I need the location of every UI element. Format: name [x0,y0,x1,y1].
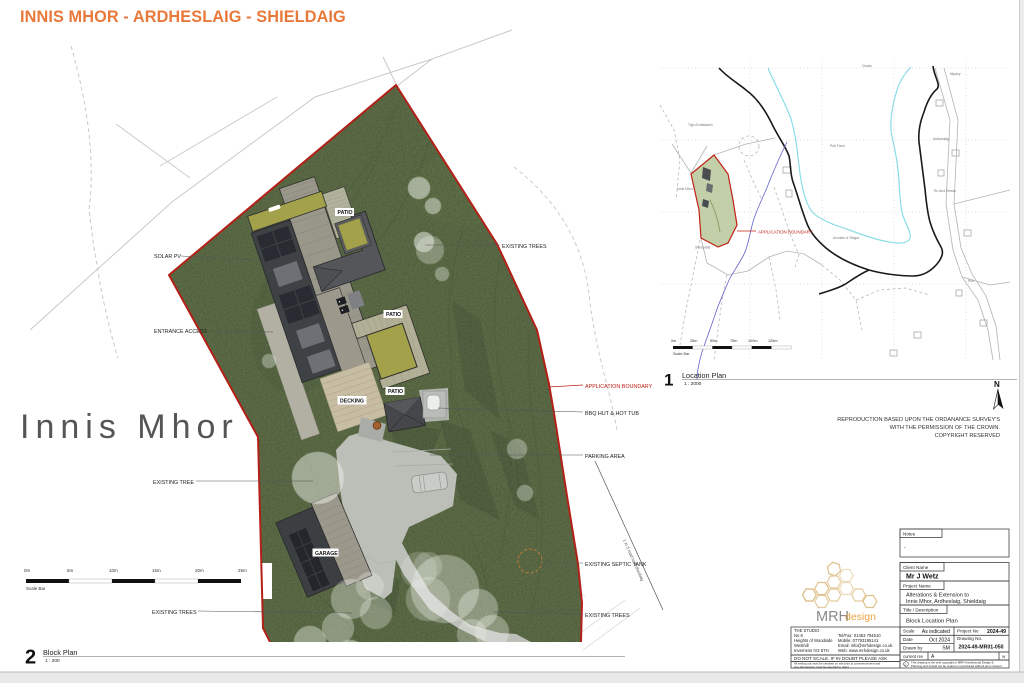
svg-text:current rev: current rev [903,654,924,659]
svg-text:PARKING AREA: PARKING AREA [585,454,625,460]
svg-text:Tigh A'chladaich: Tigh A'chladaich [688,123,713,127]
svg-text:Orcais: Orcais [862,64,872,68]
svg-text:EXISTING TREE: EXISTING TREE [153,480,194,486]
svg-text:Web: www.mrhdesign.co.uk: Web: www.mrhdesign.co.uk [838,648,890,653]
svg-text:COPYRIGHT RESERVED: COPYRIGHT RESERVED [935,433,1000,439]
svg-text:2: 2 [25,647,36,669]
svg-text:Scale Bar: Scale Bar [26,586,46,591]
svg-text:REPRODUCTION BASED UPON THE OR: REPRODUCTION BASED UPON THE ORDANANCE SU… [837,417,1000,423]
svg-text:Planning and should not be cop: Planning and should not be copied or rep… [911,664,1002,668]
svg-text:Innis Mhor: Innis Mhor [677,187,694,191]
svg-text:BBQ HUT & HOT TUB: BBQ HUT & HOT TUB [585,411,639,417]
svg-text:Mr J Wetz: Mr J Wetz [906,574,939,581]
svg-text:Pub Farm: Pub Farm [830,144,845,148]
svg-text:As indicated: As indicated [922,629,950,635]
svg-text:2024-49-MR01-050: 2024-49-MR01-050 [959,645,1004,651]
svg-text:APPLICATION BOUNDARY: APPLICATION BOUNDARY [758,230,813,235]
svg-text:Scale: Scale [903,629,915,634]
svg-text:20m: 20m [195,568,204,573]
svg-text:125m: 125m [768,339,778,343]
svg-text:Ardheslaig: Ardheslaig [933,137,949,141]
svg-text:INNIS MHOR - ARDHESLAIG - SHIE: INNIS MHOR - ARDHESLAIG - SHIELDAIG [20,8,346,26]
svg-text:Block Plan: Block Plan [43,648,77,657]
svg-text:0m: 0m [671,339,676,343]
svg-text:Drawing No.: Drawing No. [957,636,982,641]
svg-text:GARAGE: GARAGE [315,551,338,557]
svg-text:15m: 15m [152,568,161,573]
svg-text:50m: 50m [710,339,717,343]
svg-text:5m: 5m [67,568,74,573]
svg-text:SOLAR PV: SOLAR PV [154,254,181,260]
svg-text:DO NOT SCALE. IF IN DOUBT PLEA: DO NOT SCALE. IF IN DOUBT PLEASE ASK [794,656,888,661]
svg-text:Avonlee & Shigra: Avonlee & Shigra [833,236,859,240]
svg-text:1 : 200: 1 : 200 [45,658,60,664]
svg-text:Notes: Notes [903,532,916,537]
svg-text:W: W [1002,655,1006,659]
svg-text:DECKING: DECKING [340,399,364,405]
svg-text:Any discrepancy must be report: Any discrepancy must be reported to clie… [794,665,849,669]
svg-text:design: design [845,611,876,623]
svg-text:100m: 100m [748,339,758,343]
svg-text:Scale Bar: Scale Bar [673,352,690,356]
svg-text:Block Location Plan: Block Location Plan [906,619,958,625]
svg-text:Sheepfold: Sheepfold [695,246,710,250]
svg-text:Location Plan: Location Plan [682,371,726,380]
svg-text:25m: 25m [690,339,697,343]
svg-text:EXISTING TREES: EXISTING TREES [152,610,197,616]
svg-text:Date: Date [903,637,913,642]
svg-text:N: N [994,380,1000,389]
svg-text:Oct 2024: Oct 2024 [929,637,950,643]
svg-text:PATIO: PATIO [388,389,403,395]
svg-text:2024-49: 2024-49 [987,629,1006,635]
svg-text:APPLICATION BOUNDARY: APPLICATION BOUNDARY [585,384,653,390]
svg-text:PATIO: PATIO [386,312,401,318]
svg-text:Innis Mhor, Ardheslaig, Shield: Innis Mhor, Ardheslaig, Shieldaig [906,599,986,605]
svg-text:c: c [905,663,907,667]
svg-text:Alterations & Extension to: Alterations & Extension to [906,593,969,599]
svg-text:Client Name: Client Name [903,565,929,570]
svg-text:WITH THE PERMISSION OF THE CRO: WITH THE PERMISSION OF THE CROWN. [890,425,1001,431]
svg-text:Ru Aird Dheas: Ru Aird Dheas [934,189,956,193]
svg-text:Ruh: Ruh [968,279,974,283]
svg-text:10m: 10m [109,568,118,573]
svg-text:Project Name: Project Name [903,584,931,589]
svg-text:SM: SM [942,646,950,652]
svg-text:0m: 0m [24,568,31,573]
svg-text:Innis Mhor: Innis Mhor [20,408,239,446]
svg-text:EXISTING TREES: EXISTING TREES [585,613,630,619]
svg-text:Nipany: Nipany [950,72,961,76]
svg-text:25m: 25m [238,568,247,573]
svg-text:Drawn by: Drawn by [903,645,923,650]
svg-text:1 : 2000: 1 : 2000 [684,381,702,387]
svg-text:EXISTING TREES: EXISTING TREES [502,244,547,250]
svg-text:Inverness IV2 5TH: Inverness IV2 5TH [794,648,829,653]
svg-text:1: 1 [664,371,673,390]
svg-text:Title / Description: Title / Description [903,608,939,613]
svg-text:Project No: Project No [957,629,979,634]
svg-text:ENTRANCE ACCESS: ENTRANCE ACCESS [154,329,207,335]
svg-text:75m: 75m [730,339,737,343]
svg-text:PATIO: PATIO [338,210,353,216]
